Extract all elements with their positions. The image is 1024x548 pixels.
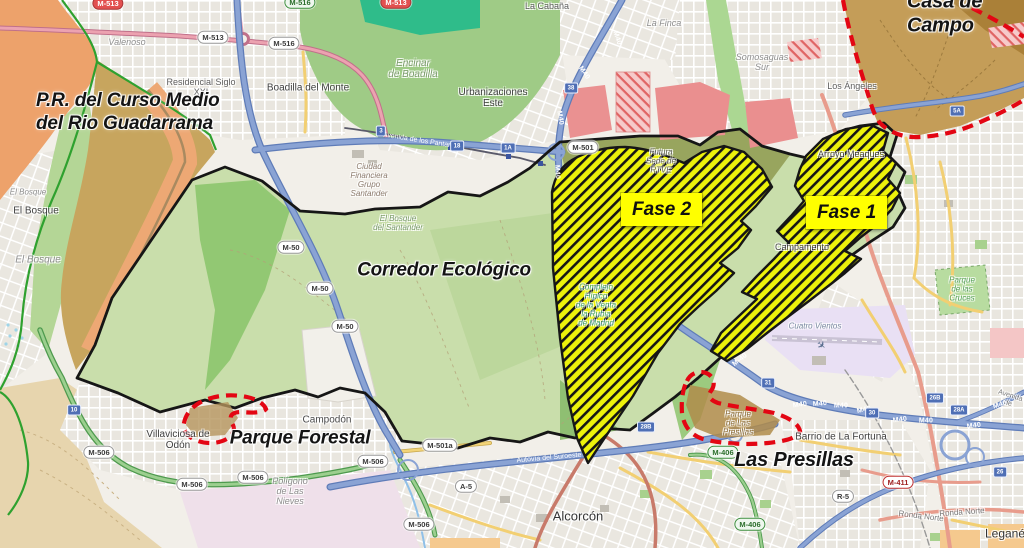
annotation-corredor-ecologico: Corredor Ecológico: [357, 258, 531, 281]
annotation-parque-forestal: Parque Forestal: [230, 426, 371, 449]
fase1-label: Fase 1: [806, 196, 887, 229]
annotation-casa-de-campo: Casa de Campo: [907, 0, 985, 38]
map-canvas: ✈: [0, 0, 1024, 548]
annotation-las-presillas: Las Presillas: [734, 448, 854, 472]
fase2-label: Fase 2: [621, 193, 702, 226]
annotation-pr-guadarrama: P.R. del Curso Medio del Rio Guadarrama: [36, 89, 220, 135]
